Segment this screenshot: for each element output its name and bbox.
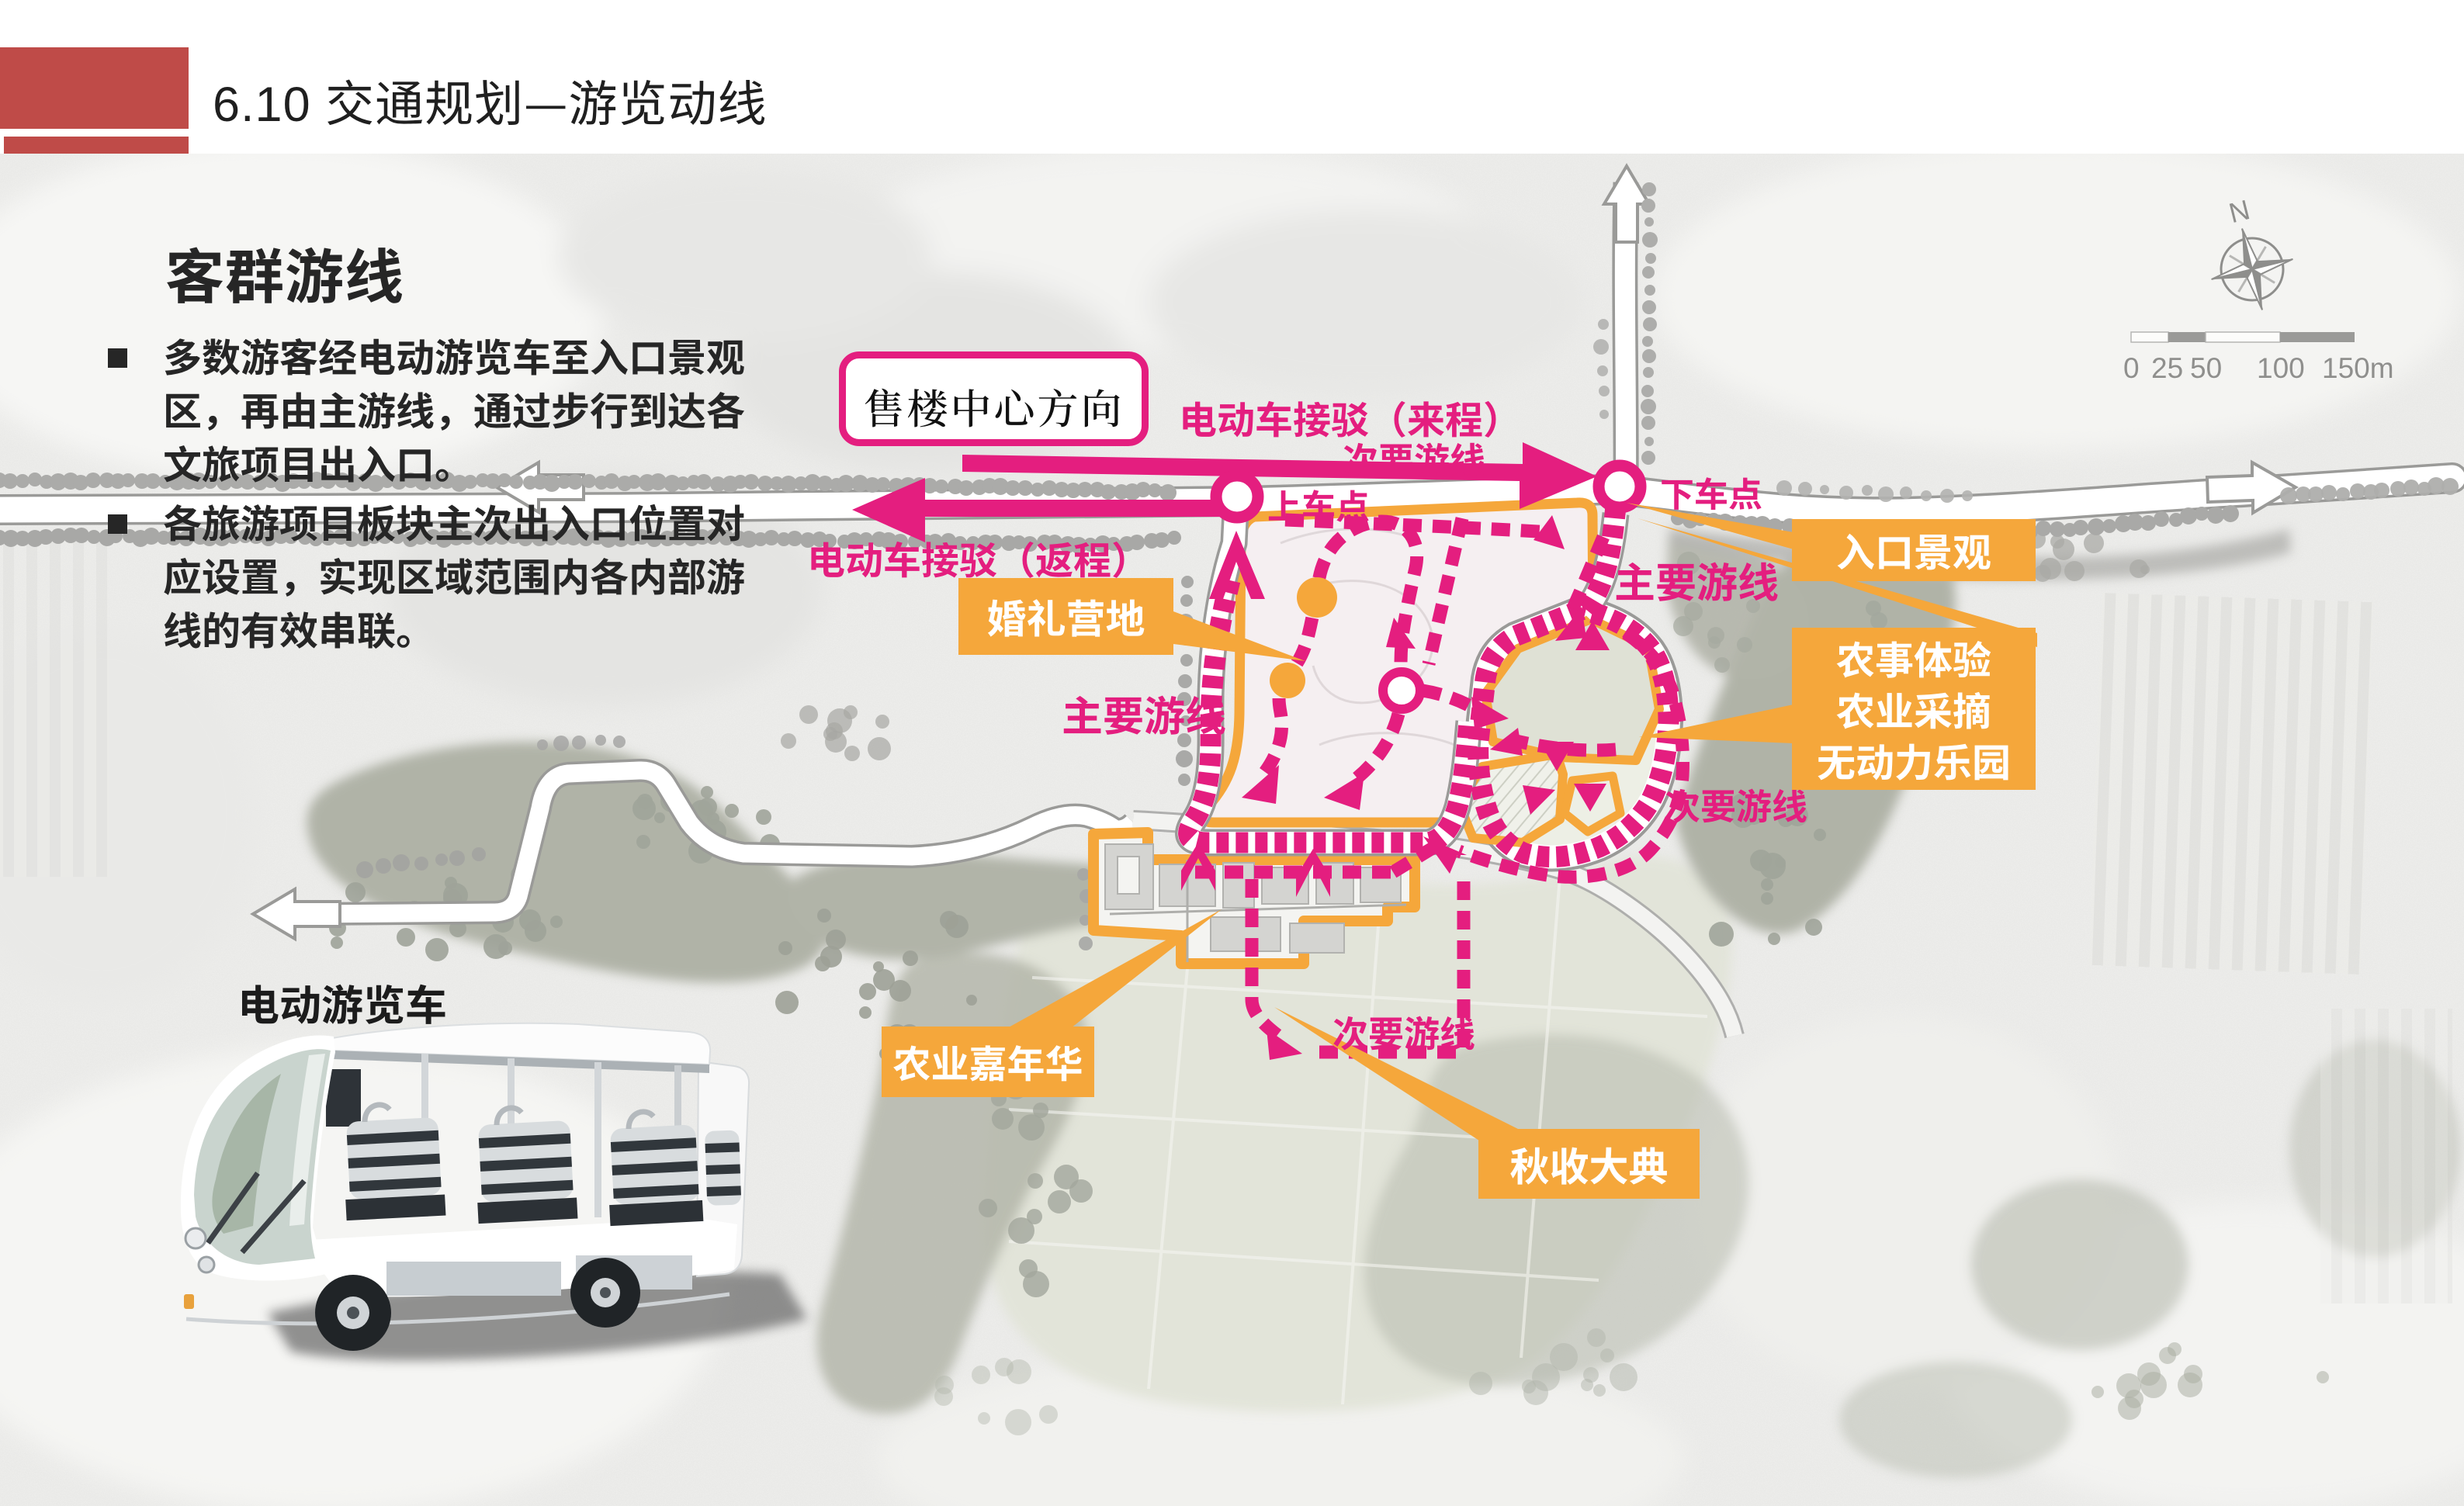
svg-text:150m: 150m	[2322, 352, 2394, 384]
svg-text:50: 50	[2190, 352, 2222, 384]
svg-text:0: 0	[2123, 352, 2140, 384]
svg-text:100: 100	[2257, 352, 2305, 384]
svg-text:25: 25	[2151, 352, 2183, 384]
